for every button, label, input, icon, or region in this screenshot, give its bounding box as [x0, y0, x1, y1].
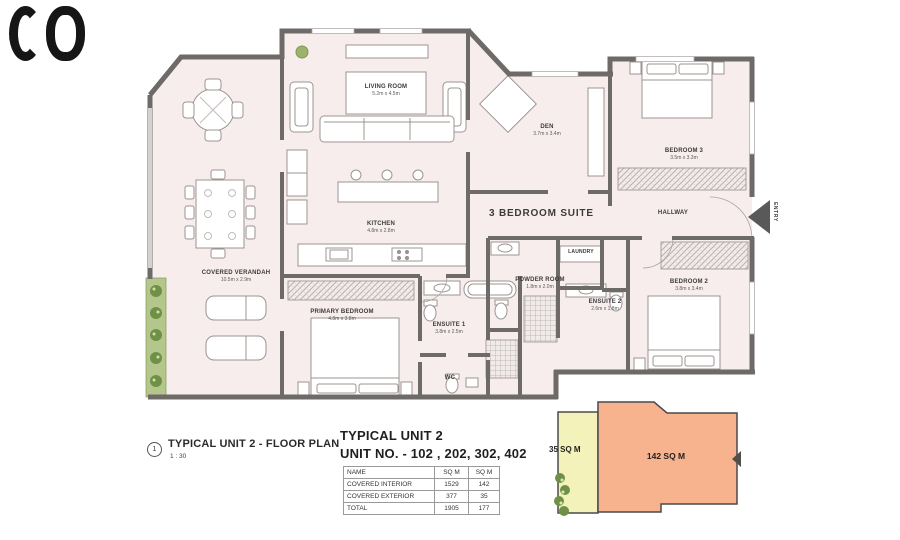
key-plan-exterior	[558, 412, 598, 513]
planter-strip	[146, 278, 166, 397]
dining-table	[185, 170, 255, 258]
room-label-living-room: LIVING ROOM 5.2m x 4.5m	[365, 84, 408, 97]
table-row: COVERED INTERIOR 1529 142	[344, 479, 500, 491]
row-total-sqft: 1905	[435, 503, 469, 515]
bedroom3-furniture	[630, 61, 724, 118]
row-covered-interior-name: COVERED INTERIOR	[344, 479, 435, 491]
room-label-den: DEN 3.7m x 3.4m	[533, 124, 561, 137]
drawing-scale: 1 : 30	[170, 453, 186, 460]
row-covered-exterior-sqft: 377	[435, 491, 469, 503]
room-label-laundry: LAUNDRY	[568, 250, 594, 256]
area-table: NAME SQ M SQ M COVERED INTERIOR 1529 142…	[343, 466, 500, 515]
room-label-powder-room: POWDER ROOM 1.8m x 2.0m	[515, 277, 565, 290]
primary-bedroom-furniture	[298, 318, 412, 396]
row-covered-exterior-name: COVERED EXTERIOR	[344, 491, 435, 503]
row-total-name: TOTAL	[344, 503, 435, 515]
room-label-kitchen: KITCHEN 4.8m x 2.8m	[367, 221, 395, 234]
area-table-header-sqm-1: SQ M	[435, 467, 469, 479]
drawing-title: TYPICAL UNIT 2 - FLOOR PLAN	[168, 438, 339, 450]
room-label-ensuite-1: ENSUITE 1 3.8m x 2.5m	[433, 322, 466, 335]
room-label-bedroom-3: BEDROOM 3 3.5m x 3.3m	[665, 148, 703, 161]
room-label-ensuite-2: ENSUITE 2 2.6m x 1.8m	[589, 299, 622, 312]
area-table-header-sqm-2: SQ M	[469, 467, 500, 479]
table-row: COVERED EXTERIOR 377 35	[344, 491, 500, 503]
area-table-header-row: NAME SQ M SQ M	[344, 467, 500, 479]
area-table-header-name: NAME	[344, 467, 435, 479]
row-covered-interior-sqm: 142	[469, 479, 500, 491]
room-label-primary-bedroom: PRIMARY BEDROOM 4.8m x 3.8m	[310, 309, 373, 322]
row-total-sqm: 177	[469, 503, 500, 515]
entry-label: ENTRY	[772, 202, 778, 222]
floor-plan-page: LIVING ROOM 5.2m x 4.5m DEN 3.7m x 3.4m …	[0, 0, 900, 540]
unit-numbers: UNIT NO. - 102 , 202, 302, 402	[340, 446, 527, 461]
drawing-marker-circle: 1	[147, 442, 162, 457]
row-covered-interior-sqft: 1529	[435, 479, 469, 491]
room-label-hallway: HALLWAY	[658, 210, 688, 217]
table-row: TOTAL 1905 177	[344, 503, 500, 515]
room-label-covered-verandah: COVERED VERANDAH 10.5m x 2.9m	[202, 270, 271, 283]
room-label-bedroom-2: BEDROOM 2 3.8m x 3.4m	[670, 279, 708, 292]
suite-type-label: 3 BEDROOM SUITE	[489, 208, 594, 219]
row-covered-exterior-sqm: 35	[469, 491, 500, 503]
unit-title: TYPICAL UNIT 2	[340, 428, 443, 443]
room-label-wc: WC	[445, 375, 455, 382]
key-plan-exterior-label: 35 SQ M	[549, 445, 581, 454]
key-plan-interior-label: 142 SQ M	[647, 451, 685, 461]
